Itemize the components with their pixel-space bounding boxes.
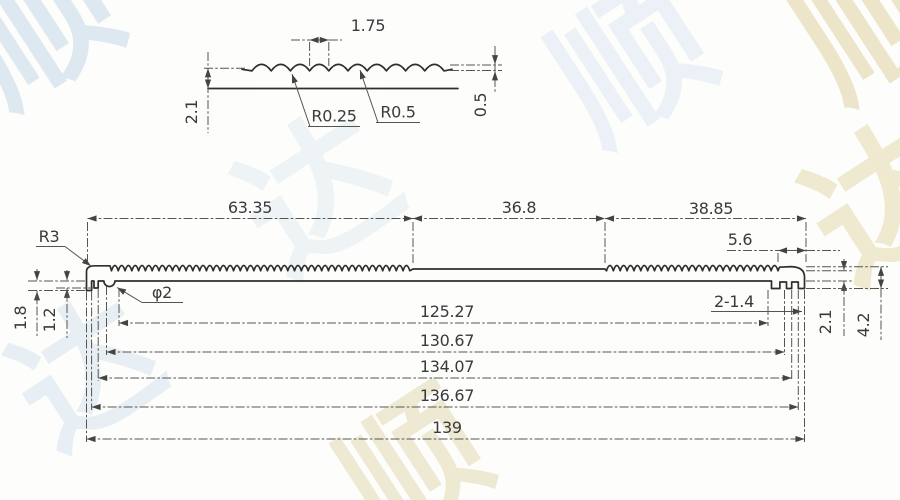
dim-label-depth: 0.5 [471,93,490,118]
profile-outline [87,266,805,291]
dim-label-right-thickness: 2.1 [816,310,835,335]
dim-pitch: 1.75 [291,16,385,66]
dim-label-radius-small: R0.25 [311,107,356,126]
dim-label-right-height: 4.2 [854,313,873,338]
dim-label-width-1: 125.27 [420,302,474,321]
dim-label-corner-radius: R3 [39,227,60,246]
dim-corner-radius: R3 [36,227,91,266]
dim-label-right-offset: 5.6 [728,230,753,249]
scanned-drawing-page: 顺 达 顺 达 顺 达 顺 1.75 [0,0,900,500]
dim-left-depths: 1.8 1.2 [11,269,93,338]
dim-right-heights: 2.1 4.2 [806,259,888,340]
detail-view: 1.75 2.1 0.5 R0.25 [182,16,502,133]
dim-slot-spec: 2-1.4 [711,292,802,312]
detail-serration-profile [242,64,452,71]
dim-label-radius-large: R0.5 [380,103,415,122]
dim-label-width-4: 136.67 [420,386,474,405]
leader-line [117,288,142,303]
dim-serration-depth: 0.5 [450,46,502,117]
main-view: 63.35 36.8 38.85 5.6 R3 [11,198,888,442]
dim-label-width-2: 130.67 [420,331,474,350]
dim-label-left-inner: 1.2 [40,308,59,333]
dim-label-width-3: 134.07 [420,357,474,376]
dim-width-stack: 125.27 130.67 134.07 136.67 139 [87,286,805,442]
dim-label-seg3: 38.85 [689,199,733,218]
dim-radius-large: R0.5 [360,70,420,123]
technical-drawing: 1.75 2.1 0.5 R0.25 [0,0,900,500]
leader-line [360,70,378,123]
dim-label-slots: 2-1.4 [714,292,754,311]
dim-right-offset: 5.6 [727,230,840,264]
dim-label-width-5: 139 [432,418,462,437]
dim-top-chain: 63.35 36.8 38.85 [88,198,807,263]
dim-label-seg2: 36.8 [502,198,537,217]
dim-label-hole: φ2 [152,283,172,302]
dim-label-thickness: 2.1 [182,100,201,125]
dim-label-pitch: 1.75 [351,16,385,35]
dim-label-seg1: 63.35 [228,198,272,217]
leader-line [292,74,310,127]
dim-detail-thickness: 2.1 [182,52,247,133]
dim-label-left-outer: 1.8 [11,306,30,331]
dim-radius-small: R0.25 [292,74,360,127]
dim-hole-diameter: φ2 [117,283,183,303]
